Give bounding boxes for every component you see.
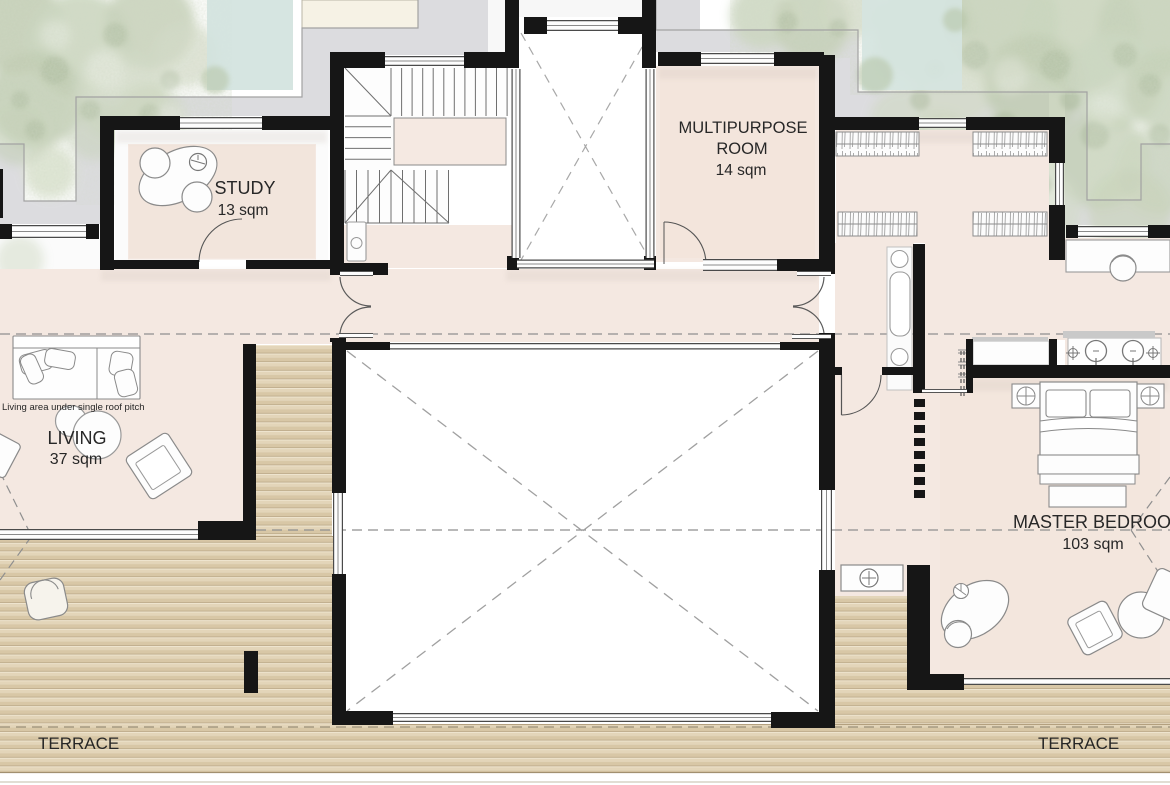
svg-text:STUDY: STUDY [214, 178, 275, 198]
svg-text:LIVING: LIVING [47, 428, 106, 448]
svg-text:TERRACE: TERRACE [38, 734, 119, 753]
svg-text:37 sqm: 37 sqm [50, 451, 102, 468]
svg-text:103 sqm: 103 sqm [1062, 536, 1123, 553]
svg-text:MASTER BEDROOM: MASTER BEDROOM [1013, 512, 1170, 532]
svg-text:TERRACE: TERRACE [1038, 734, 1119, 753]
svg-text:14 sqm: 14 sqm [716, 162, 767, 179]
svg-text:13 sqm: 13 sqm [218, 202, 269, 219]
svg-text:ROOM: ROOM [716, 140, 767, 158]
svg-text:Living area under single roof: Living area under single roof pitch [2, 402, 145, 413]
svg-text:MULTIPURPOSE: MULTIPURPOSE [679, 119, 808, 137]
